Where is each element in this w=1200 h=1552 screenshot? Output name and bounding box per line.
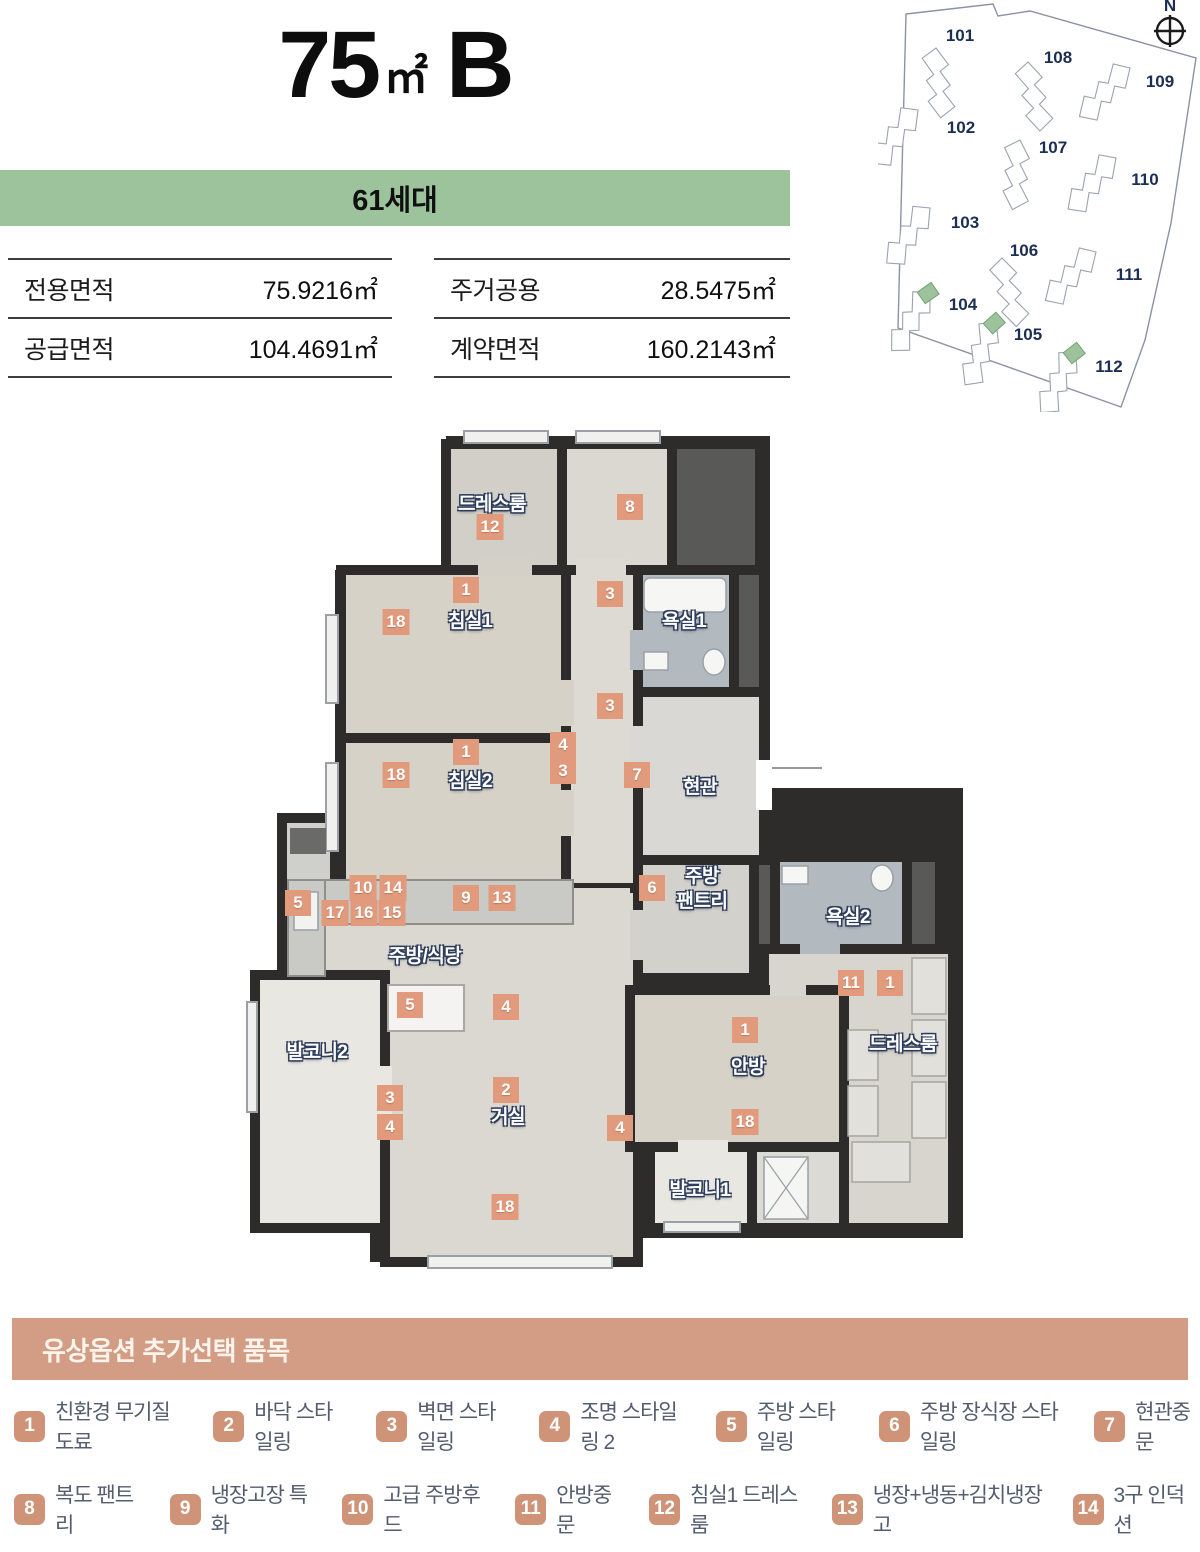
building-label: 110 — [1131, 170, 1158, 189]
option-label: 주방 스타일링 — [757, 1396, 852, 1456]
building-label: 106 — [1010, 241, 1038, 260]
building-label: 107 — [1039, 138, 1067, 157]
option-marker: 15 — [379, 900, 406, 926]
area-label: 공급면적 — [8, 330, 114, 366]
option-marker: 4 — [550, 732, 576, 758]
closet-right3 — [907, 857, 940, 949]
building-label: 103 — [951, 213, 979, 232]
option-number-badge: 1 — [14, 1411, 45, 1442]
option-number-badge: 12 — [649, 1494, 680, 1525]
area-table-right: 주거공용 28.5475㎡ 계약면적 160.2143㎡ — [434, 258, 790, 378]
option-number-badge: 4 — [539, 1411, 570, 1442]
compass-north-label: N — [1164, 0, 1176, 15]
option-marker: 18 — [383, 609, 410, 635]
option-label: 고급 주방후드 — [383, 1479, 488, 1539]
option-marker: 18 — [492, 1194, 519, 1220]
options-row: 1친환경 무기질 도료 2바닥 스타일링 3벽면 스타일링 4조명 스타일링 2… — [14, 1396, 1194, 1456]
table-row: 공급면적 104.4691㎡ — [8, 317, 392, 376]
option-label: 3구 인덕션 — [1114, 1479, 1194, 1539]
option-marker: 18 — [383, 762, 410, 788]
option-item: 10고급 주방후드 — [342, 1479, 488, 1539]
table-row: 계약면적 160.2143㎡ — [434, 317, 790, 376]
site-map-graphic: N 101 — [878, 0, 1200, 412]
household-count: 61세대 — [352, 177, 438, 219]
option-number-badge: 8 — [14, 1494, 45, 1525]
option-marker: 11 — [838, 970, 864, 996]
unit-title: 75 ㎡ B — [0, 0, 790, 110]
area-label: 주거공용 — [434, 271, 540, 307]
option-label: 친환경 무기질 도료 — [55, 1396, 186, 1456]
option-item: 9냉장고장 특화 — [170, 1479, 316, 1539]
options-row: 8복도 팬트리 9냉장고장 특화 10고급 주방후드 11안방중문 12침실1 … — [14, 1479, 1194, 1539]
option-label: 바닥 스타일링 — [254, 1396, 349, 1456]
building-label: 109 — [1146, 72, 1174, 91]
option-item: 7현관중문 — [1094, 1396, 1194, 1456]
option-item: 4조명 스타일링 2 — [539, 1396, 689, 1456]
building-label: 104 — [949, 295, 978, 314]
option-label: 현관중문 — [1135, 1396, 1194, 1456]
option-marker: 3 — [597, 693, 623, 719]
option-label: 조명 스타일링 2 — [580, 1396, 689, 1456]
option-marker: 9 — [453, 885, 479, 911]
area-value: 75.9216㎡ — [263, 271, 392, 307]
option-marker: 2 — [493, 1077, 519, 1103]
area-value: 104.4691㎡ — [249, 330, 392, 366]
building-label: 112 — [1095, 357, 1122, 376]
ac-unit — [764, 1157, 808, 1219]
option-item: 8복도 팬트리 — [14, 1479, 143, 1539]
label-kitchen: 주방/식당 — [389, 945, 462, 969]
option-marker: 8 — [617, 494, 643, 520]
option-marker: 1 — [453, 739, 479, 765]
household-count-banner: 61세대 — [0, 170, 790, 226]
unit-size-unit: ㎡ — [384, 41, 428, 105]
label-entrance: 현관 — [683, 776, 717, 800]
label-bath2: 욕실2 — [826, 906, 870, 930]
option-number-badge: 11 — [515, 1494, 546, 1525]
option-marker: 5 — [285, 890, 311, 916]
option-marker: 10 — [350, 875, 377, 901]
option-item: 5주방 스타일링 — [716, 1396, 852, 1456]
closet-top-right — [672, 444, 760, 570]
label-master: 안방 — [731, 1056, 765, 1080]
option-number-badge: 13 — [832, 1494, 863, 1525]
label-dress-right: 드레스룸 — [869, 1033, 937, 1057]
option-label: 침실1 드레스룸 — [690, 1479, 805, 1539]
building-label: 105 — [1014, 325, 1042, 344]
option-label: 벽면 스타일링 — [417, 1396, 512, 1456]
option-marker: 3 — [597, 581, 623, 607]
area-table-left: 전용면적 75.9216㎡ 공급면적 104.4691㎡ — [8, 258, 392, 378]
option-marker: 3 — [550, 758, 576, 784]
room-balcony2 — [255, 975, 385, 1228]
option-marker: 13 — [489, 885, 516, 911]
corridor — [566, 570, 638, 900]
option-label: 냉장+냉동+김치냉장고 — [873, 1479, 1046, 1539]
label-pantry-2: 팬트리 — [677, 890, 728, 914]
option-item: 6주방 장식장 스타일링 — [879, 1396, 1067, 1456]
option-number-badge: 9 — [170, 1494, 201, 1525]
option-item: 3벽면 스타일링 — [376, 1396, 512, 1456]
option-number-badge: 2 — [213, 1411, 244, 1442]
option-marker: 7 — [624, 762, 650, 788]
option-marker: 3 — [377, 1085, 403, 1111]
site-map: N 101 — [878, 0, 1200, 412]
label-balcony2: 발코니2 — [286, 1041, 347, 1065]
option-number-badge: 6 — [879, 1411, 910, 1442]
option-marker: 12 — [477, 514, 504, 540]
option-number-badge: 7 — [1094, 1411, 1125, 1442]
option-marker: 6 — [639, 875, 665, 901]
option-item: 13냉장+냉동+김치냉장고 — [832, 1479, 1046, 1539]
option-marker: 1 — [732, 1017, 758, 1043]
area-value: 28.5475㎡ — [661, 271, 790, 307]
building-label: 102 — [947, 118, 975, 137]
option-number-badge: 5 — [716, 1411, 747, 1442]
label-bed2: 침실2 — [448, 770, 492, 794]
option-number-badge: 10 — [342, 1494, 373, 1525]
option-item: 12침실1 드레스룸 — [649, 1479, 805, 1539]
floor-plan: 드레스룸 침실1 욕실1 침실2 현관 주방 팬트리 주방/식당 발코니2 거실… — [240, 430, 964, 1270]
option-marker: 16 — [351, 900, 378, 926]
building-label: 108 — [1044, 48, 1072, 67]
brochure-page: 75 ㎡ B 61세대 전용면적 75.9216㎡ 공급면적 104.4691㎡… — [0, 0, 1200, 1552]
label-living: 거실 — [491, 1106, 525, 1130]
option-marker: 1 — [453, 577, 479, 603]
option-marker: 14 — [380, 875, 407, 901]
option-number-badge: 3 — [376, 1411, 407, 1442]
option-marker: 18 — [732, 1109, 759, 1135]
option-item: 11안방중문 — [515, 1479, 622, 1539]
table-row: 전용면적 75.9216㎡ — [8, 258, 392, 317]
option-marker: 4 — [607, 1115, 633, 1141]
option-marker: 1 — [877, 970, 903, 996]
unit-size: 75 — [278, 20, 378, 110]
option-label: 주방 장식장 스타일링 — [920, 1396, 1067, 1456]
option-item: 143구 인덕션 — [1073, 1479, 1194, 1539]
options-legend: 1친환경 무기질 도료 2바닥 스타일링 3벽면 스타일링 4조명 스타일링 2… — [14, 1396, 1194, 1552]
table-row: 주거공용 28.5475㎡ — [434, 258, 790, 317]
label-balcony1: 발코니1 — [669, 1179, 730, 1203]
option-number-badge: 14 — [1073, 1494, 1104, 1525]
area-value: 160.2143㎡ — [647, 330, 790, 366]
option-label: 복도 팬트리 — [55, 1479, 143, 1539]
floor-plan-graphic — [240, 430, 964, 1270]
label-bath1: 욕실1 — [662, 610, 706, 634]
option-marker: 5 — [397, 992, 423, 1018]
options-section-title: 유상옵션 추가선택 품목 — [42, 1331, 290, 1368]
option-item: 2바닥 스타일링 — [213, 1396, 349, 1456]
label-pantry-1: 주방 — [685, 865, 719, 889]
closet-right1 — [734, 570, 764, 692]
label-bed1: 침실1 — [448, 610, 492, 634]
option-item: 1친환경 무기질 도료 — [14, 1396, 186, 1456]
option-marker: 4 — [377, 1114, 403, 1140]
option-label: 안방중문 — [556, 1479, 622, 1539]
area-label: 계약면적 — [434, 330, 540, 366]
compass-icon — [1154, 15, 1186, 47]
option-label: 냉장고장 특화 — [211, 1479, 316, 1539]
options-section-header: 유상옵션 추가선택 품목 — [12, 1318, 1188, 1380]
option-marker: 17 — [322, 900, 349, 926]
building-label: 111 — [1116, 265, 1143, 284]
unit-type: B — [446, 20, 512, 110]
option-marker: 4 — [493, 994, 519, 1020]
area-label: 전용면적 — [8, 271, 114, 307]
building-label: 101 — [946, 26, 974, 45]
